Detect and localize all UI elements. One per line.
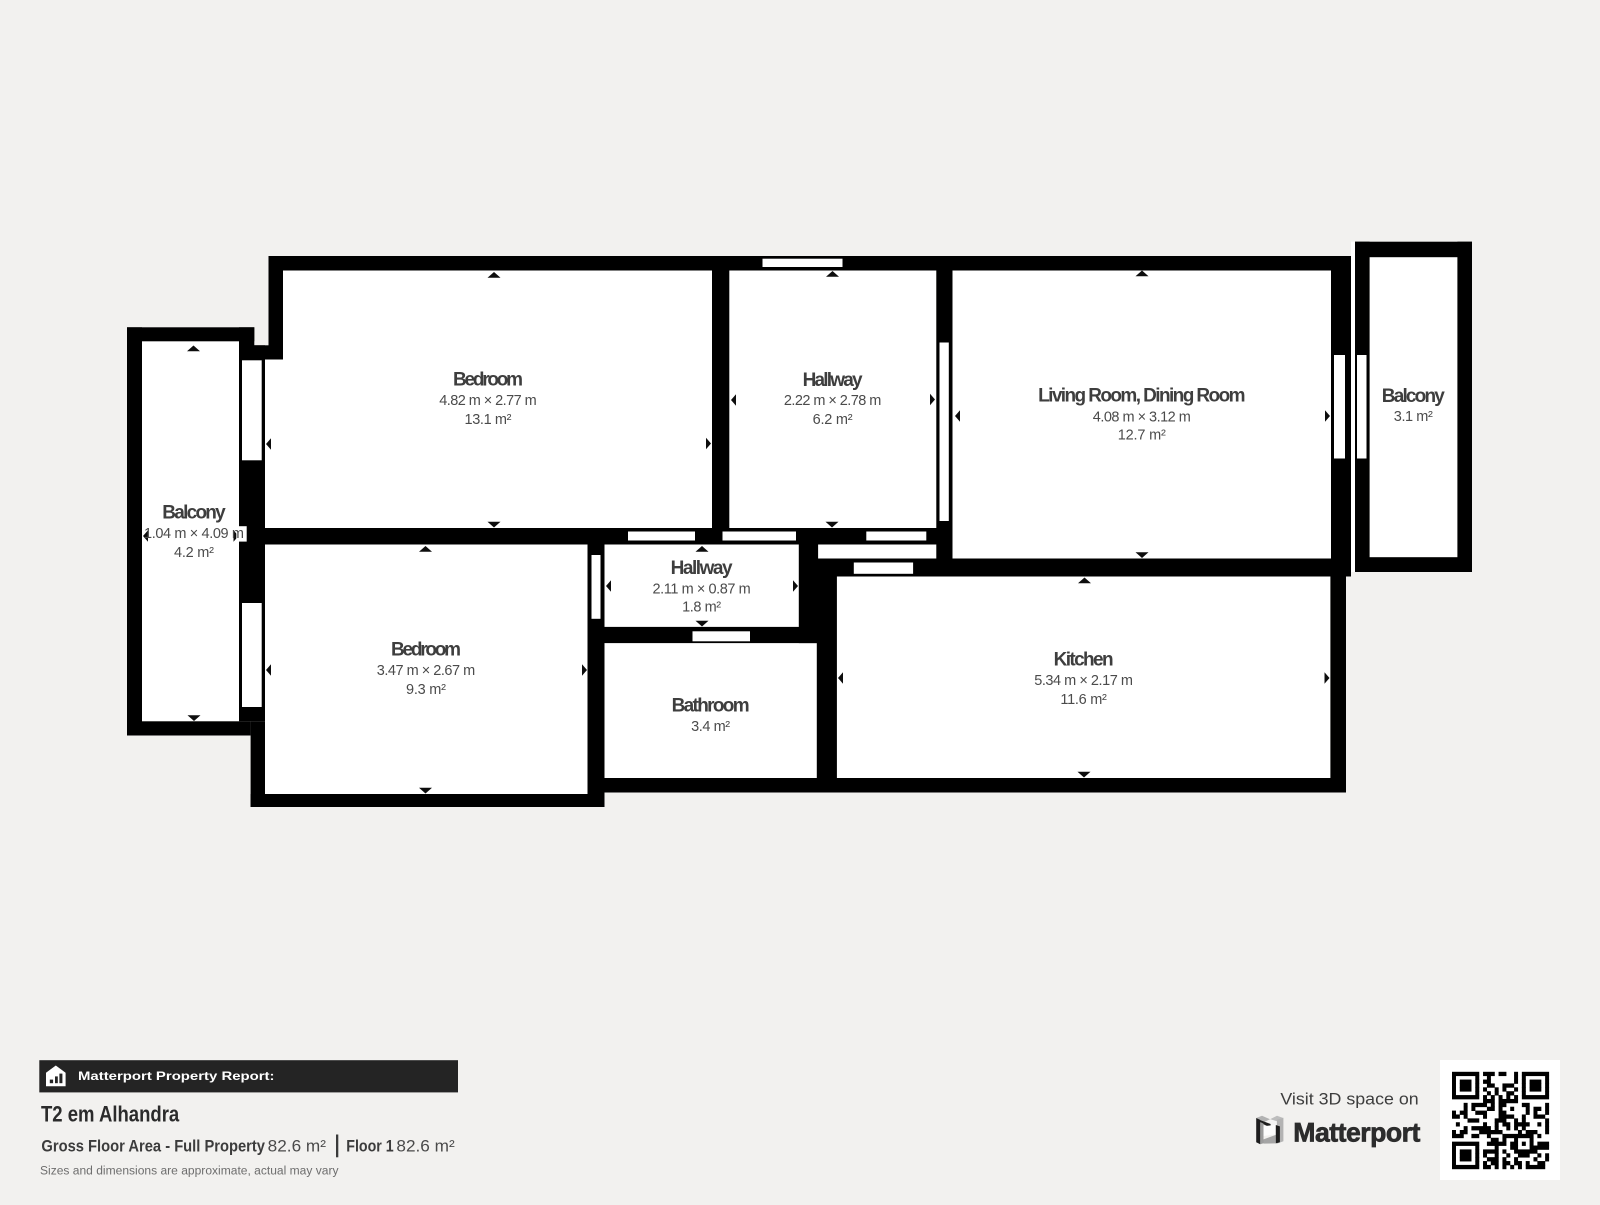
svg-text:3.1 m²: 3.1 m² <box>1394 409 1433 425</box>
svg-text:Matterport: Matterport <box>1293 1117 1420 1147</box>
svg-text:4.08 m × 3.12 m: 4.08 m × 3.12 m <box>1093 410 1191 426</box>
svg-text:Visit 3D space on: Visit 3D space on <box>1280 1090 1418 1109</box>
svg-text:2.22 m × 2.78 m: 2.22 m × 2.78 m <box>784 393 882 409</box>
svg-text:3.4 m²: 3.4 m² <box>691 719 730 735</box>
svg-text:2.11 m × 0.87 m: 2.11 m × 0.87 m <box>653 582 751 598</box>
svg-text:Hallway: Hallway <box>671 558 733 579</box>
svg-text:9.3 m²: 9.3 m² <box>406 682 446 698</box>
svg-text:Bedroom: Bedroom <box>391 640 461 661</box>
svg-text:Hallway: Hallway <box>803 370 863 391</box>
svg-text:Living Room, Dining Room: Living Room, Dining Room <box>1038 386 1245 407</box>
svg-text:Bathroom: Bathroom <box>672 695 750 716</box>
svg-text:11.6 m²: 11.6 m² <box>1060 692 1107 708</box>
svg-text:Matterport Property Report:: Matterport Property Report: <box>78 1069 275 1083</box>
svg-text:6.2 m²: 6.2 m² <box>813 412 853 428</box>
svg-text:3.47 m × 2.67 m: 3.47 m × 2.67 m <box>377 663 476 679</box>
svg-text:13.1 m²: 13.1 m² <box>465 412 512 428</box>
svg-text:Sizes and dimensions are appro: Sizes and dimensions are approximate, ac… <box>40 1165 339 1177</box>
svg-text:Gross Floor Area - Full Proper: Gross Floor Area - Full Property <box>41 1138 265 1156</box>
svg-text:Floor 1: Floor 1 <box>346 1138 393 1156</box>
svg-text:1.04 m × 4.09 m: 1.04 m × 4.09 m <box>144 526 244 542</box>
svg-text:4.2 m²: 4.2 m² <box>174 545 214 561</box>
svg-text:82.6 m²: 82.6 m² <box>268 1138 327 1156</box>
svg-text:5.34 m × 2.17 m: 5.34 m × 2.17 m <box>1034 673 1133 689</box>
svg-text:Balcony: Balcony <box>1382 386 1445 407</box>
svg-text:4.82 m × 2.77 m: 4.82 m × 2.77 m <box>439 393 537 409</box>
svg-text:T2 em Alhandra: T2 em Alhandra <box>41 1102 180 1127</box>
svg-text:Bedroom: Bedroom <box>453 370 523 391</box>
svg-text:1.8 m²: 1.8 m² <box>682 600 721 616</box>
svg-text:82.6 m²: 82.6 m² <box>396 1138 455 1156</box>
svg-text:Balcony: Balcony <box>162 502 226 523</box>
svg-text:Kitchen: Kitchen <box>1054 649 1114 670</box>
svg-text:12.7 m²: 12.7 m² <box>1118 428 1166 444</box>
